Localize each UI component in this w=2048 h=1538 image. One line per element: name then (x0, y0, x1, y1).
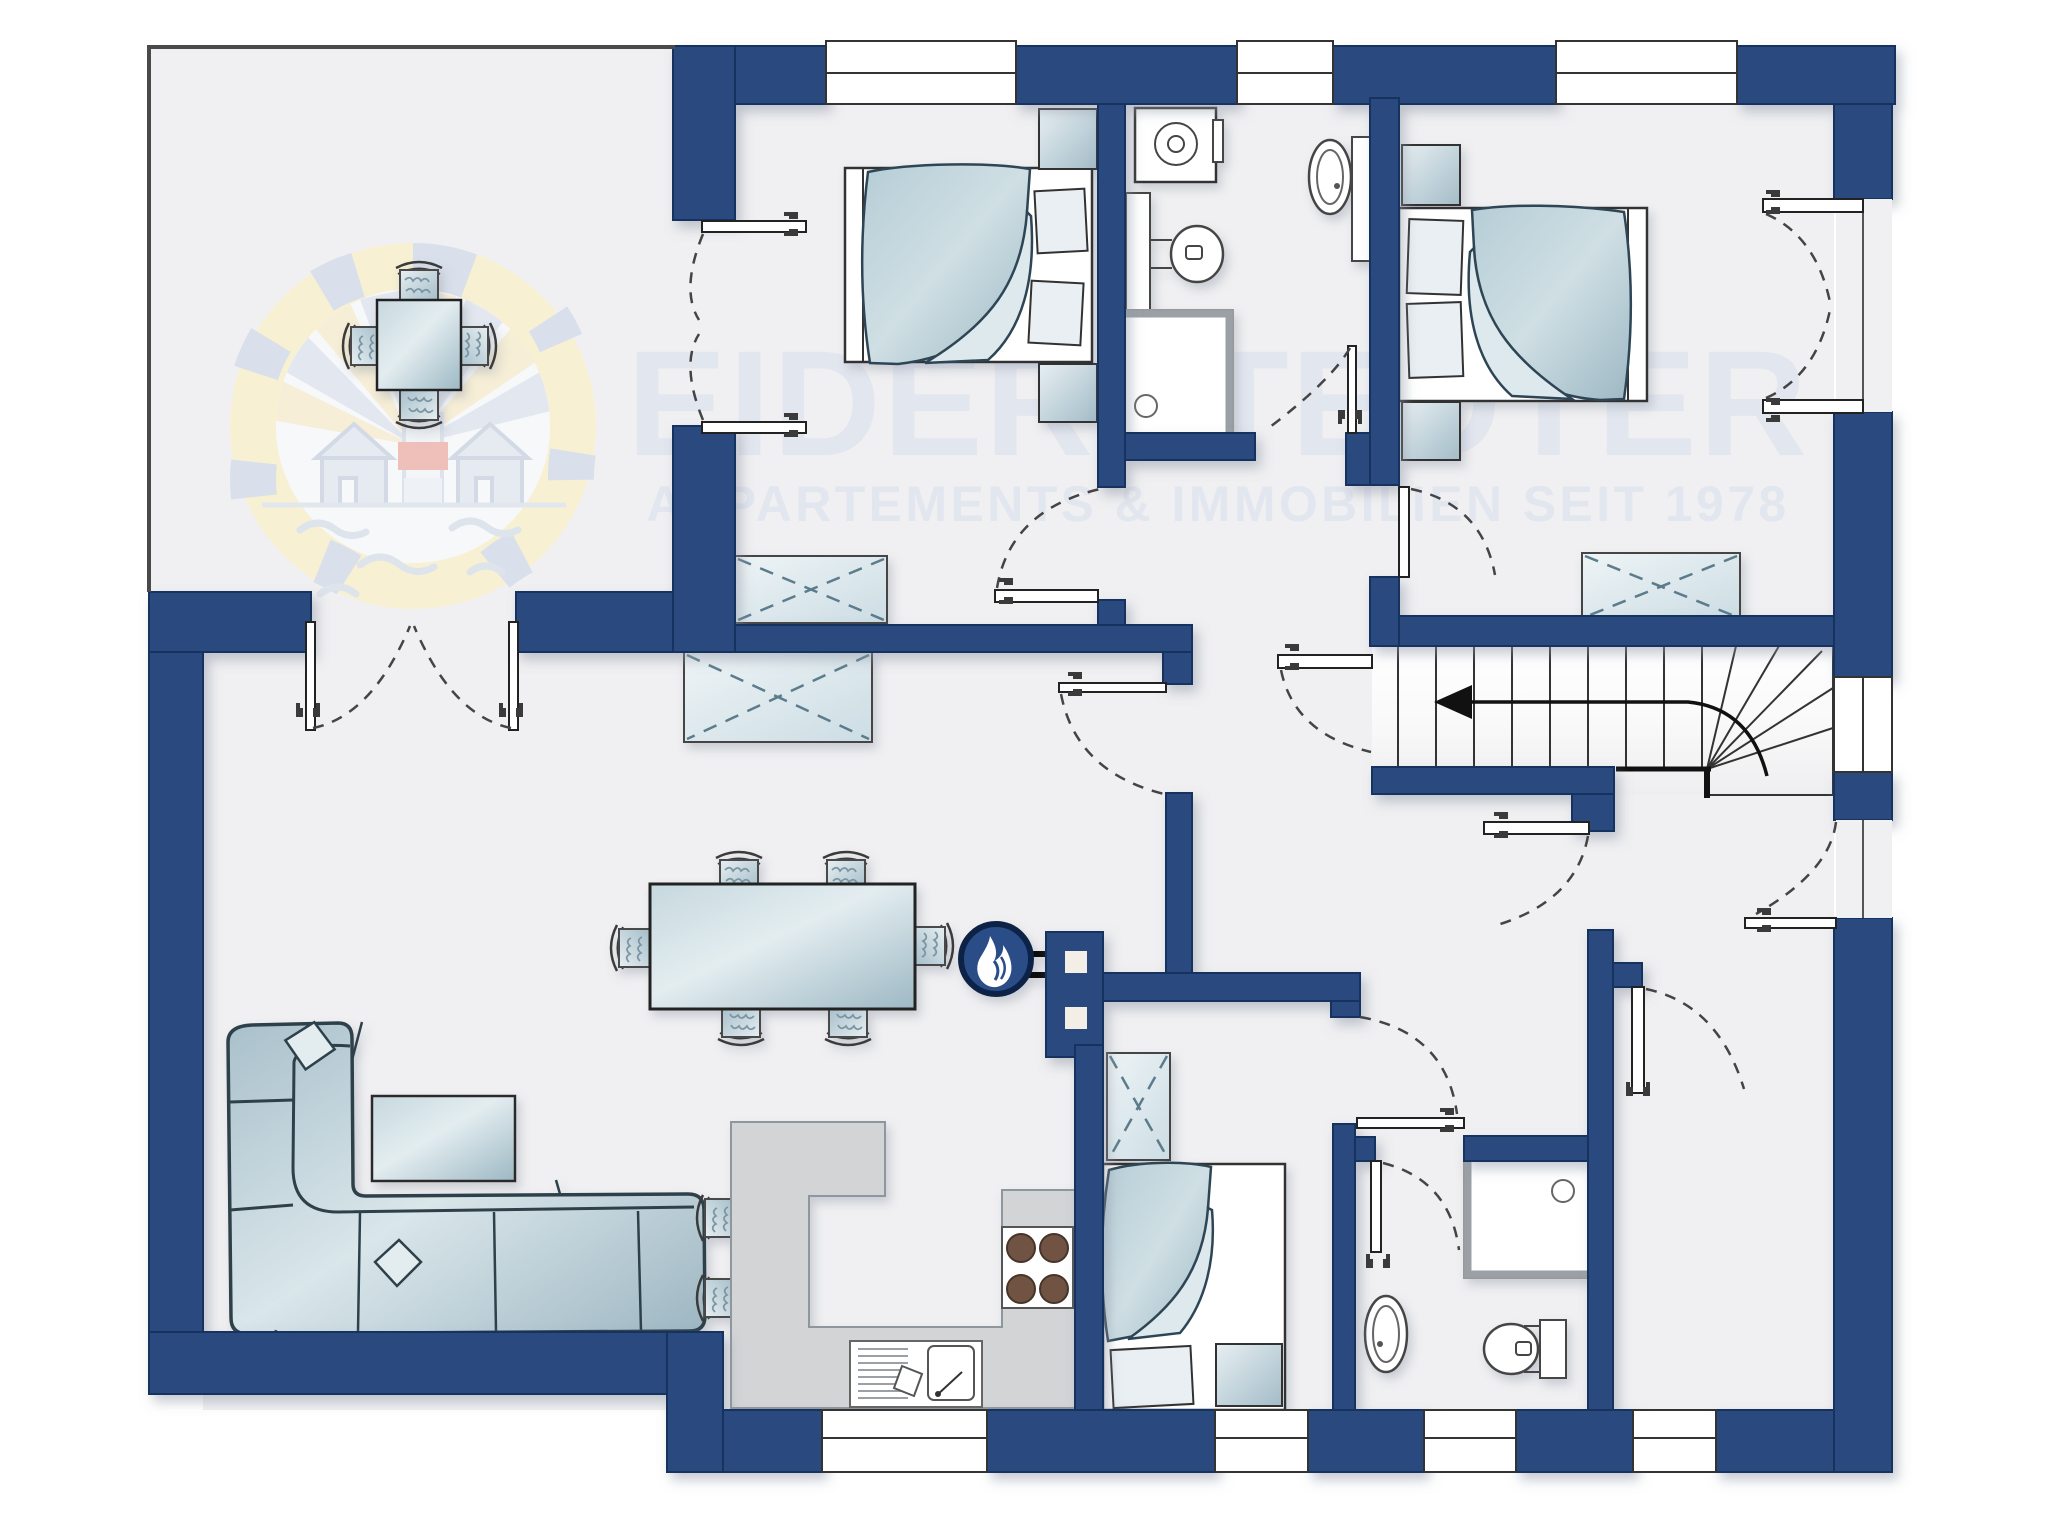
svg-text:APPARTEMENTS & IMMOBILIEN SEIT: APPARTEMENTS & IMMOBILIEN SEIT 1978 (646, 476, 1789, 532)
